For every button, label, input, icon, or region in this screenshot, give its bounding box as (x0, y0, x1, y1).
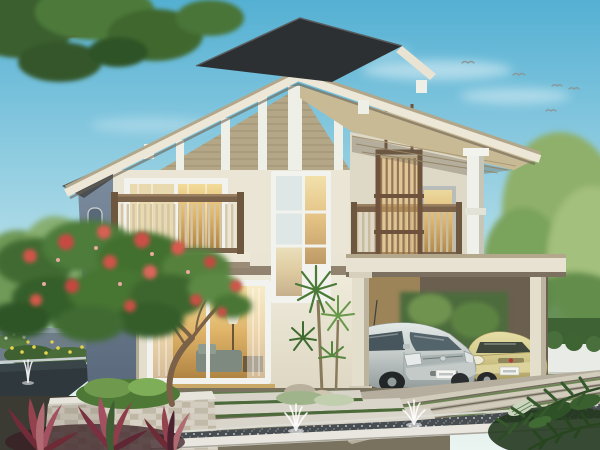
blossom (23, 249, 37, 263)
flower (150, 252, 154, 256)
house-rendering (0, 0, 600, 450)
silver-foliage (314, 394, 354, 406)
top-rail (112, 196, 243, 202)
flower (186, 270, 190, 274)
planter-shrub (84, 378, 132, 398)
blossom (30, 294, 42, 306)
blossom (65, 279, 79, 293)
gable-trim (258, 96, 267, 170)
flower (10, 346, 14, 350)
blossom (204, 256, 216, 268)
column-cap (349, 272, 372, 278)
cloud (362, 60, 512, 80)
flower (42, 282, 46, 286)
blossom (230, 280, 242, 292)
flower (32, 345, 36, 349)
column-capital (463, 148, 489, 156)
rail-post (351, 202, 357, 260)
flower (56, 346, 60, 350)
blossom (171, 241, 185, 255)
fascia-bracket (358, 100, 369, 114)
blossom (190, 294, 202, 306)
foliage-blob (176, 0, 244, 36)
flower (68, 350, 72, 354)
carport-roof-edge (346, 254, 566, 258)
plate-text (503, 370, 516, 373)
fascia-bracket (416, 80, 427, 93)
blossom (134, 232, 150, 248)
carport-roof-shadow (346, 272, 566, 277)
flower (118, 282, 122, 286)
foliage-blob (88, 37, 148, 67)
gable-trim (288, 86, 302, 170)
pane-glow (276, 246, 302, 296)
flower (56, 258, 60, 262)
flower (26, 340, 29, 343)
blossom (58, 234, 74, 250)
column-shade (541, 277, 546, 383)
flower (44, 351, 48, 355)
wheel-hub (388, 378, 397, 387)
column-shade (479, 156, 484, 256)
plate-text (439, 373, 453, 376)
window-pane (305, 176, 326, 264)
rail-highlight (112, 194, 243, 197)
blossom (103, 255, 117, 269)
splash (288, 429, 304, 434)
splash (22, 381, 34, 385)
foliage-blob (56, 306, 124, 342)
hedge-ball (565, 333, 583, 351)
badge (509, 358, 513, 362)
blossom (97, 225, 111, 239)
blossom (124, 300, 136, 312)
column-shade (364, 277, 369, 389)
curtain (247, 286, 265, 378)
flower (20, 350, 24, 354)
column-molding (465, 208, 486, 215)
blossom (217, 307, 227, 317)
gable-trim (221, 118, 230, 170)
splash (406, 423, 422, 428)
screen-rail (374, 230, 424, 234)
flower (4, 336, 7, 339)
flower (80, 345, 84, 349)
side-mirror (403, 344, 410, 349)
headlight (404, 353, 422, 366)
greenery (408, 294, 452, 326)
rail-post (456, 202, 462, 260)
cloud (460, 88, 570, 104)
screen-rail (374, 194, 424, 198)
flower (50, 340, 53, 343)
flower (94, 246, 98, 250)
badge (440, 356, 446, 361)
rendering-canvas (0, 0, 600, 450)
rail-post (237, 192, 244, 254)
planter-shrub (128, 378, 168, 396)
blossom (143, 265, 157, 279)
carport-roof-fascia (346, 258, 566, 274)
